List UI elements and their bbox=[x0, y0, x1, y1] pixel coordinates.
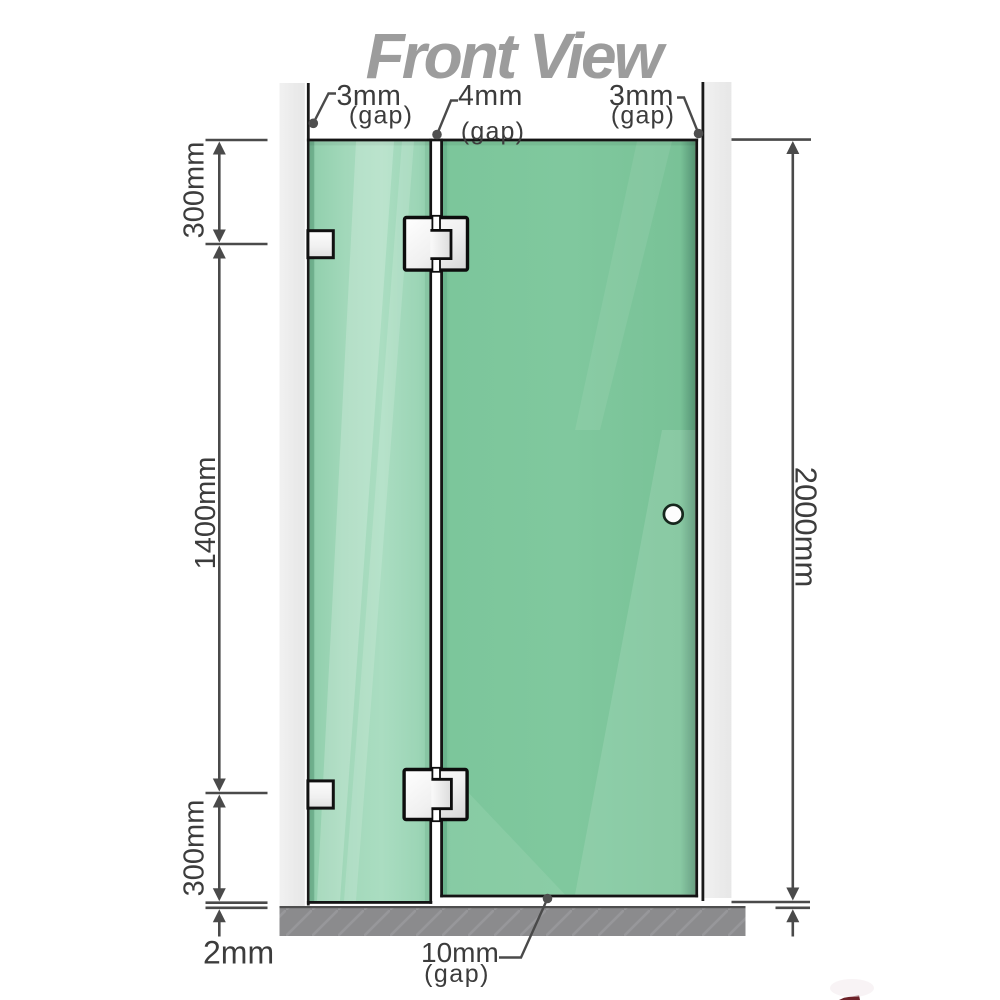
svg-text:(gap): (gap) bbox=[424, 960, 490, 988]
svg-text:300mm: 300mm bbox=[179, 142, 211, 239]
svg-text:(gap): (gap) bbox=[349, 102, 413, 130]
svg-text:(gap): (gap) bbox=[461, 118, 525, 146]
svg-text:1400mm: 1400mm bbox=[190, 457, 222, 570]
svg-text:2mm: 2mm bbox=[203, 935, 274, 971]
svg-text:300mm: 300mm bbox=[179, 800, 211, 897]
svg-text:2000mm: 2000mm bbox=[789, 467, 824, 588]
svg-text:(gap): (gap) bbox=[611, 102, 675, 130]
svg-text:4mm: 4mm bbox=[458, 80, 523, 112]
